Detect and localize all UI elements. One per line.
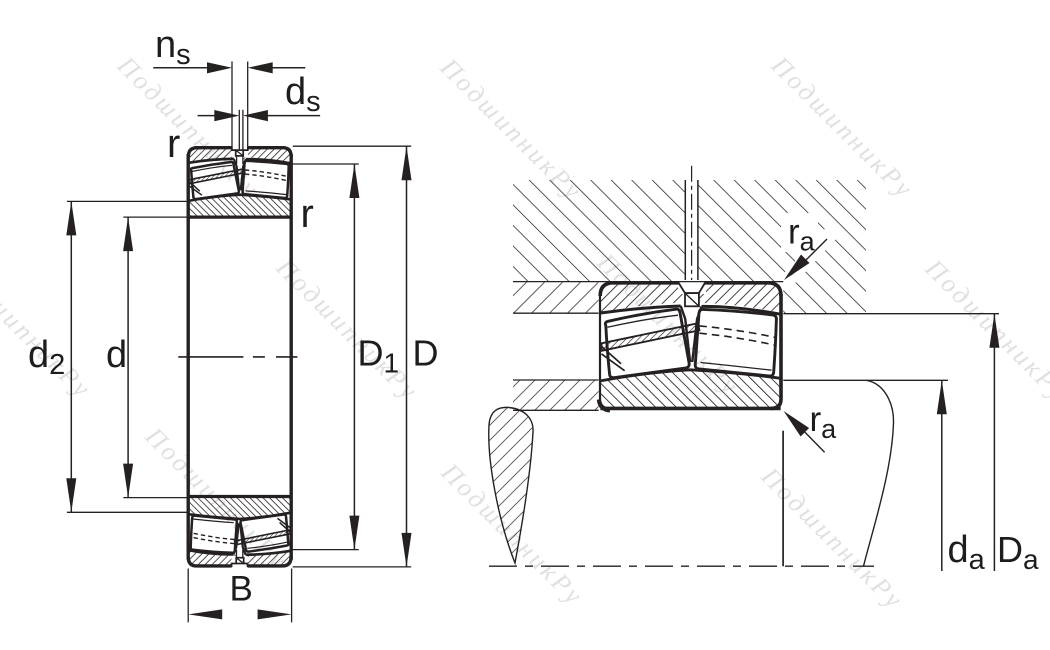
svg-text:r: r <box>301 192 314 236</box>
svg-text:B: B <box>230 570 253 609</box>
svg-text:Da: Da <box>997 529 1039 575</box>
svg-text:D1: D1 <box>358 333 400 379</box>
svg-text:ПодшипникРу: ПодшипникРу <box>919 253 1050 408</box>
svg-text:ПодшипникРу: ПодшипникРу <box>0 250 98 405</box>
svg-text:ПодшипникРу: ПодшипникРу <box>755 461 910 616</box>
svg-text:ПодшипникРу: ПодшипникРу <box>270 252 425 407</box>
svg-text:da: da <box>948 529 986 576</box>
svg-text:ds: ds <box>285 71 321 118</box>
svg-text:ra: ra <box>810 400 838 444</box>
svg-text:d: d <box>106 334 127 376</box>
svg-text:D: D <box>413 333 439 374</box>
svg-text:ns: ns <box>155 24 191 71</box>
svg-text:r: r <box>167 122 180 166</box>
svg-text:d2: d2 <box>28 334 65 381</box>
